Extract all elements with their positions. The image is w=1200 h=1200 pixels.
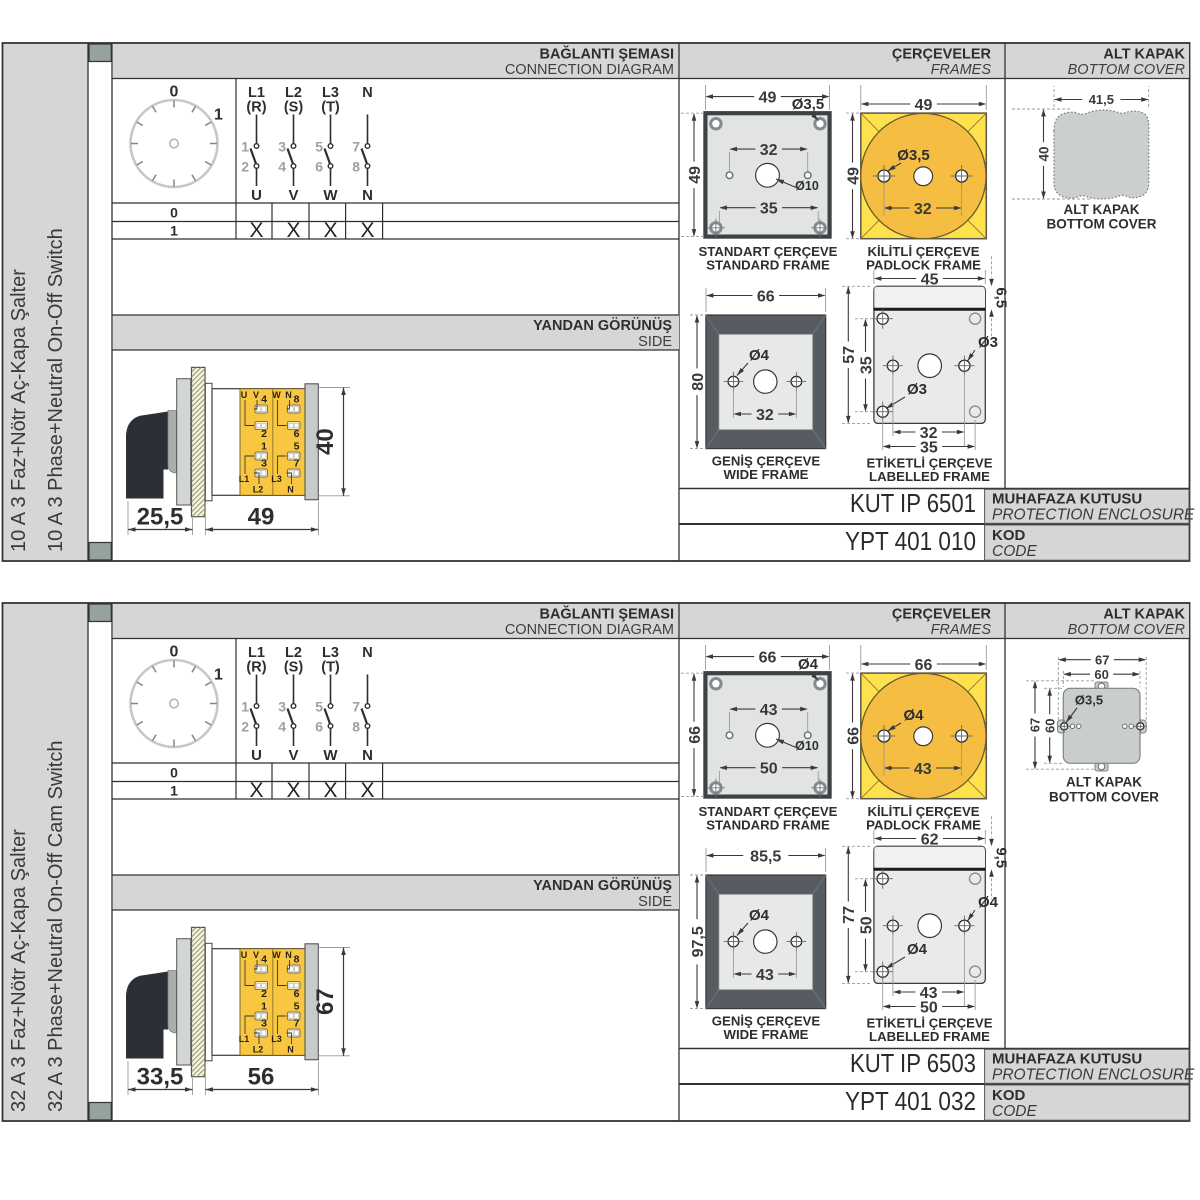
svg-text:7: 7: [352, 139, 360, 155]
svg-text:50: 50: [920, 999, 938, 1016]
svg-text:V: V: [288, 747, 298, 764]
svg-text:1: 1: [170, 783, 178, 799]
svg-text:10 A 3 Faz+Nötr Aç-Kapa Şalter: 10 A 3 Faz+Nötr Aç-Kapa Şalter: [8, 269, 30, 552]
svg-text:66: 66: [845, 727, 862, 745]
svg-text:PADLOCK FRAME: PADLOCK FRAME: [866, 258, 981, 273]
svg-text:CODE: CODE: [992, 1103, 1037, 1120]
svg-text:Ø3,5: Ø3,5: [897, 147, 930, 164]
svg-text:1: 1: [261, 441, 267, 453]
svg-text:PADLOCK FRAME: PADLOCK FRAME: [866, 818, 981, 833]
svg-text:6: 6: [315, 719, 323, 735]
svg-text:80: 80: [690, 373, 707, 391]
svg-text:(S): (S): [284, 100, 304, 116]
svg-text:3: 3: [278, 139, 286, 155]
svg-text:40: 40: [312, 428, 339, 455]
svg-text:N: N: [285, 390, 292, 400]
svg-text:5: 5: [294, 1001, 300, 1013]
svg-text:BAĞLANTI ŞEMASI: BAĞLANTI ŞEMASI: [539, 45, 674, 63]
svg-text:(T): (T): [321, 100, 340, 116]
svg-text:32: 32: [756, 407, 774, 424]
svg-text:N: N: [287, 485, 294, 495]
svg-text:1: 1: [241, 699, 249, 715]
svg-text:5: 5: [315, 139, 323, 155]
svg-text:7: 7: [294, 1018, 300, 1030]
svg-text:X: X: [360, 779, 374, 802]
svg-text:66: 66: [687, 726, 704, 744]
svg-text:LABELLED FRAME: LABELLED FRAME: [869, 469, 990, 484]
svg-text:40: 40: [1036, 146, 1051, 161]
svg-text:X: X: [323, 219, 337, 242]
svg-text:3: 3: [261, 1018, 267, 1030]
svg-text:KUT IP 6501: KUT IP 6501: [850, 488, 976, 518]
svg-text:Ø4: Ø4: [978, 894, 999, 911]
svg-text:0: 0: [170, 84, 179, 101]
svg-text:W: W: [272, 950, 281, 960]
svg-text:49: 49: [248, 504, 275, 531]
svg-text:WIDE FRAME: WIDE FRAME: [724, 467, 809, 482]
svg-text:Ø4: Ø4: [798, 656, 819, 673]
svg-text:PROTECTION ENCLOSURE: PROTECTION ENCLOSURE: [992, 1067, 1195, 1084]
svg-text:W: W: [323, 187, 338, 204]
svg-text:U: U: [241, 950, 248, 960]
svg-text:LABELLED FRAME: LABELLED FRAME: [869, 1029, 990, 1044]
svg-text:2: 2: [261, 988, 267, 1000]
svg-text:0: 0: [170, 765, 178, 781]
svg-text:6,5: 6,5: [992, 287, 1009, 308]
svg-text:CONNECTION DIAGRAM: CONNECTION DIAGRAM: [505, 622, 674, 638]
svg-text:32: 32: [914, 201, 932, 218]
svg-text:X: X: [360, 219, 374, 242]
svg-text:U: U: [251, 187, 262, 204]
svg-text:2: 2: [261, 428, 267, 440]
svg-text:10 A 3 Phase+Neutral On-Off Sw: 10 A 3 Phase+Neutral On-Off Switch: [45, 228, 67, 552]
svg-text:X: X: [286, 779, 300, 802]
svg-text:Ø3,5: Ø3,5: [792, 96, 825, 113]
svg-text:8: 8: [294, 394, 300, 406]
svg-text:0: 0: [170, 205, 178, 221]
svg-text:49: 49: [845, 167, 862, 185]
svg-text:6: 6: [294, 988, 300, 1000]
svg-text:FRAMES: FRAMES: [931, 622, 992, 638]
svg-text:3: 3: [278, 699, 286, 715]
svg-text:L2: L2: [253, 1045, 264, 1055]
svg-text:8: 8: [352, 719, 360, 735]
svg-text:4: 4: [261, 954, 267, 966]
svg-text:U: U: [241, 390, 248, 400]
svg-text:49: 49: [687, 166, 704, 184]
svg-text:1: 1: [170, 223, 178, 239]
svg-text:Ø4: Ø4: [749, 907, 770, 924]
svg-text:SIDE: SIDE: [638, 894, 672, 910]
svg-text:N: N: [362, 645, 372, 661]
svg-text:ÇERÇEVELER: ÇERÇEVELER: [892, 47, 992, 63]
svg-text:Ø4: Ø4: [903, 707, 924, 724]
svg-text:57: 57: [841, 346, 858, 364]
svg-text:Ø10: Ø10: [795, 179, 819, 193]
svg-text:43: 43: [914, 761, 932, 778]
svg-text:67: 67: [1095, 652, 1109, 667]
svg-text:35: 35: [858, 356, 875, 374]
svg-text:35: 35: [920, 439, 938, 456]
svg-text:2: 2: [241, 159, 249, 175]
svg-text:67: 67: [312, 988, 339, 1015]
svg-text:KUT IP 6503: KUT IP 6503: [850, 1048, 976, 1078]
svg-text:56: 56: [248, 1064, 275, 1091]
svg-text:X: X: [249, 779, 263, 802]
svg-text:MUHAFAZA KUTUSU: MUHAFAZA KUTUSU: [992, 1051, 1142, 1068]
svg-text:43: 43: [756, 967, 774, 984]
svg-text:L2: L2: [253, 485, 264, 495]
svg-text:V: V: [253, 950, 259, 960]
svg-text:WIDE FRAME: WIDE FRAME: [724, 1027, 809, 1042]
svg-text:77: 77: [841, 906, 858, 924]
svg-text:Ø10: Ø10: [795, 739, 819, 753]
svg-text:N: N: [287, 1045, 294, 1055]
svg-text:V: V: [253, 390, 259, 400]
svg-text:6: 6: [315, 159, 323, 175]
svg-text:4: 4: [261, 394, 267, 406]
svg-text:32: 32: [760, 142, 778, 159]
svg-text:50: 50: [858, 916, 875, 934]
svg-text:32 A 3 Faz+Nötr Aç-Kapa Şalter: 32 A 3 Faz+Nötr Aç-Kapa Şalter: [8, 829, 30, 1112]
svg-text:Ø3,5: Ø3,5: [1075, 693, 1103, 708]
svg-text:(R): (R): [246, 100, 266, 116]
svg-text:PROTECTION ENCLOSURE: PROTECTION ENCLOSURE: [992, 507, 1195, 524]
svg-text:CODE: CODE: [992, 543, 1037, 560]
svg-text:N: N: [362, 747, 373, 764]
svg-text:85,5: 85,5: [750, 848, 781, 865]
svg-text:66: 66: [915, 657, 933, 674]
svg-text:25,5: 25,5: [137, 504, 184, 531]
svg-text:60: 60: [1094, 667, 1108, 682]
svg-text:66: 66: [757, 288, 775, 305]
svg-text:7: 7: [352, 699, 360, 715]
svg-text:1: 1: [241, 139, 249, 155]
svg-text:ÇERÇEVELER: ÇERÇEVELER: [892, 607, 992, 623]
svg-text:43: 43: [760, 702, 778, 719]
svg-text:1: 1: [214, 667, 223, 684]
svg-text:YANDAN GÖRÜNÜŞ: YANDAN GÖRÜNÜŞ: [533, 877, 672, 894]
svg-text:ALT KAPAK: ALT KAPAK: [1064, 202, 1140, 217]
svg-text:49: 49: [915, 97, 933, 114]
svg-text:0: 0: [170, 644, 179, 661]
svg-text:W: W: [323, 747, 338, 764]
svg-text:YANDAN GÖRÜNÜŞ: YANDAN GÖRÜNÜŞ: [533, 317, 672, 334]
svg-text:35: 35: [760, 200, 778, 217]
svg-text:Ø3: Ø3: [978, 334, 998, 351]
svg-text:50: 50: [760, 760, 778, 777]
svg-text:ALT KAPAK: ALT KAPAK: [1103, 607, 1185, 623]
svg-text:41,5: 41,5: [1089, 92, 1114, 107]
svg-text:CONNECTION DIAGRAM: CONNECTION DIAGRAM: [505, 62, 674, 78]
svg-text:Ø4: Ø4: [907, 941, 928, 958]
svg-text:5: 5: [315, 699, 323, 715]
svg-text:3: 3: [261, 458, 267, 470]
svg-text:V: V: [288, 187, 298, 204]
svg-text:YPT 401 032: YPT 401 032: [845, 1086, 976, 1116]
svg-text:Ø3: Ø3: [907, 381, 927, 398]
svg-text:(T): (T): [321, 660, 340, 676]
svg-text:N: N: [362, 187, 373, 204]
svg-text:YPT 401 010: YPT 401 010: [845, 526, 976, 556]
svg-text:BOTTOM COVER: BOTTOM COVER: [1049, 790, 1159, 805]
svg-text:1: 1: [214, 107, 223, 124]
svg-text:W: W: [272, 390, 281, 400]
svg-text:X: X: [286, 219, 300, 242]
svg-text:N: N: [285, 950, 292, 960]
svg-text:KOD: KOD: [992, 1087, 1026, 1104]
svg-text:7: 7: [294, 458, 300, 470]
svg-text:Ø4: Ø4: [749, 347, 770, 364]
svg-text:60: 60: [1042, 719, 1057, 733]
svg-text:X: X: [323, 779, 337, 802]
svg-text:STANDARD FRAME: STANDARD FRAME: [706, 818, 830, 833]
svg-text:L3: L3: [271, 1034, 282, 1044]
svg-text:L1: L1: [239, 1034, 250, 1044]
svg-text:32 A 3 Phase+Neutral On-Off Ca: 32 A 3 Phase+Neutral On-Off Cam Switch: [45, 741, 67, 1112]
svg-text:6: 6: [294, 428, 300, 440]
svg-text:FRAMES: FRAMES: [931, 62, 992, 78]
svg-text:X: X: [249, 219, 263, 242]
svg-text:BAĞLANTI ŞEMASI: BAĞLANTI ŞEMASI: [539, 605, 674, 623]
svg-text:BOTTOM COVER: BOTTOM COVER: [1068, 62, 1186, 78]
svg-text:4: 4: [278, 159, 286, 175]
svg-text:5: 5: [294, 441, 300, 453]
svg-text:(R): (R): [246, 660, 266, 676]
svg-text:2: 2: [241, 719, 249, 735]
svg-text:8: 8: [352, 159, 360, 175]
svg-text:KOD: KOD: [992, 527, 1026, 544]
svg-text:N: N: [362, 85, 372, 101]
svg-text:66: 66: [759, 649, 777, 666]
svg-text:49: 49: [759, 89, 777, 106]
svg-text:BOTTOM COVER: BOTTOM COVER: [1068, 622, 1186, 638]
svg-text:SIDE: SIDE: [638, 334, 672, 350]
svg-text:67: 67: [1028, 718, 1043, 732]
svg-text:9,5: 9,5: [992, 847, 1009, 868]
svg-text:97,5: 97,5: [690, 926, 707, 957]
svg-text:4: 4: [278, 719, 286, 735]
svg-text:MUHAFAZA KUTUSU: MUHAFAZA KUTUSU: [992, 491, 1142, 508]
svg-text:(S): (S): [284, 660, 304, 676]
svg-text:ALT KAPAK: ALT KAPAK: [1066, 775, 1142, 790]
svg-text:1: 1: [261, 1001, 267, 1013]
svg-text:L3: L3: [271, 474, 282, 484]
svg-text:BOTTOM COVER: BOTTOM COVER: [1046, 217, 1156, 232]
svg-text:ALT KAPAK: ALT KAPAK: [1103, 47, 1185, 63]
svg-text:8: 8: [294, 954, 300, 966]
svg-text:L1: L1: [239, 474, 250, 484]
svg-text:STANDARD FRAME: STANDARD FRAME: [706, 258, 830, 273]
svg-text:U: U: [251, 747, 262, 764]
svg-text:33,5: 33,5: [137, 1064, 184, 1091]
